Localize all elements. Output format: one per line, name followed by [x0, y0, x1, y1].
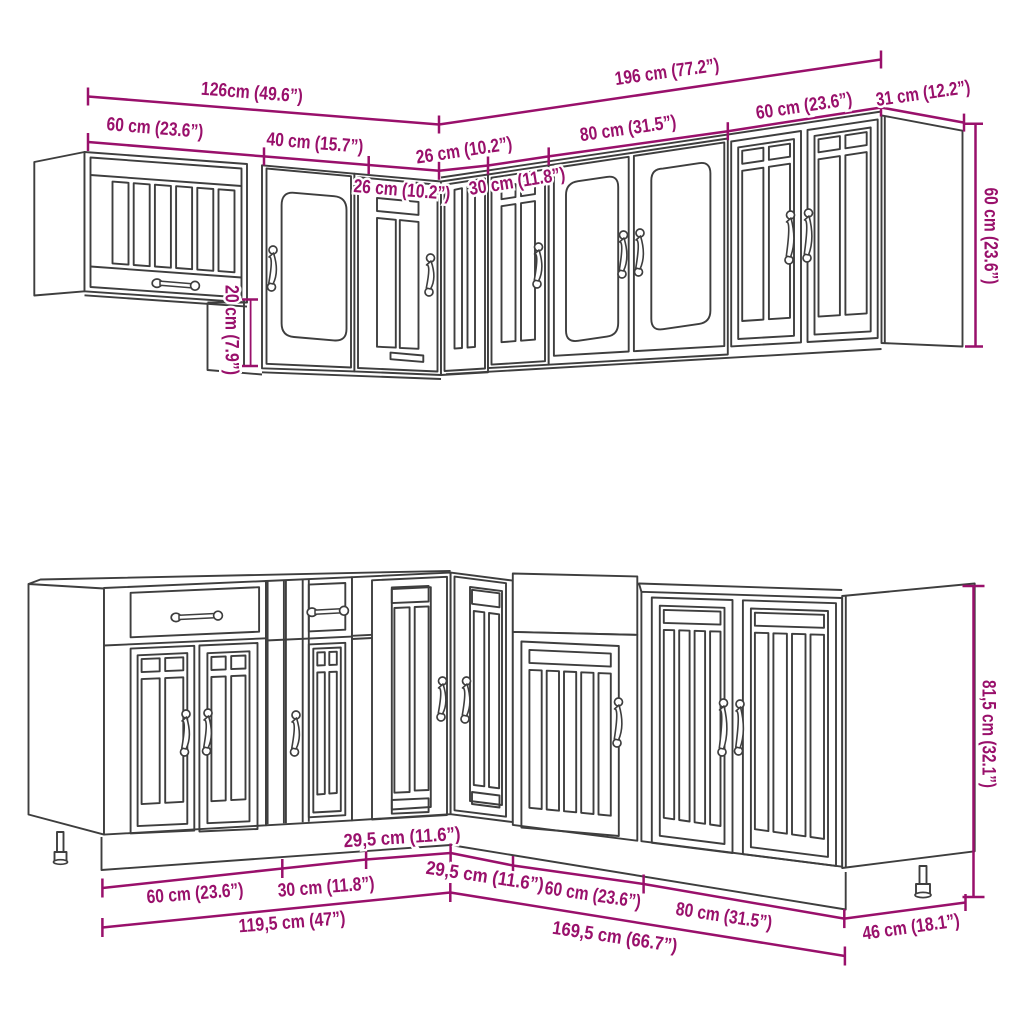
svg-text:20 cm (7.9”): 20 cm (7.9”)	[221, 285, 242, 375]
svg-text:81,5 cm (32.1”): 81,5 cm (32.1”)	[978, 680, 999, 788]
svg-text:60 cm (23.6”): 60 cm (23.6”)	[980, 188, 1001, 285]
